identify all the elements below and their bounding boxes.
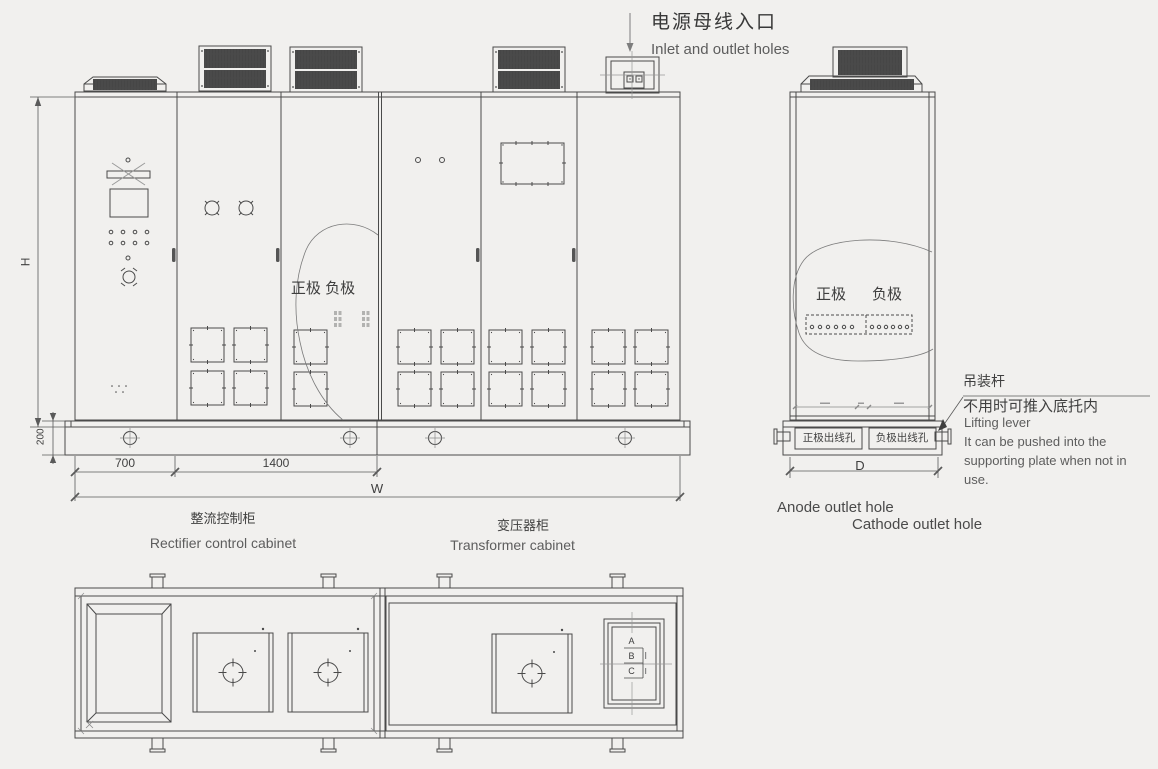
lifting-tab — [150, 738, 165, 752]
phase-b-label: B — [625, 651, 638, 661]
indicator-lights — [109, 230, 149, 245]
fan-plate — [288, 628, 368, 712]
front-polarity-label: 正极 负极 — [284, 280, 362, 297]
side-polarity-positive-label: 正极 — [810, 286, 852, 303]
display-screen — [110, 189, 148, 217]
lifting-tab — [150, 574, 165, 588]
roof-vent-box — [290, 47, 362, 92]
polarity-studs — [334, 312, 370, 326]
terminal-strip — [806, 315, 912, 334]
dim-segment1-label: 700 — [100, 457, 150, 471]
lifting-tab — [321, 738, 336, 752]
phase-c-label: C — [625, 666, 638, 676]
access-plate — [499, 141, 566, 186]
phase-a-label: A — [625, 636, 638, 646]
fan-plate — [492, 629, 572, 713]
transformer-cabinet-label-en: Transformer cabinet — [440, 537, 585, 553]
lifting-lever-note-en-line1: It can be pushed into the — [964, 435, 1106, 450]
transformer-cabinet-label-cn: 变压器柜 — [448, 519, 598, 534]
base-plinth — [65, 421, 690, 455]
busbar-detail — [600, 612, 672, 715]
side-polarity-negative-label: 负极 — [866, 286, 908, 303]
lifting-lever-label-en: Lifting lever — [964, 416, 1030, 431]
engineering-drawing-canvas: 电源母线入口 Inlet and outlet holes 正极 负极 正极 负… — [0, 0, 1158, 769]
fan-openings — [205, 201, 253, 215]
anode-outlet-label-en: Anode outlet hole — [777, 499, 894, 516]
dim-depth-label: D — [851, 459, 869, 474]
dim-total-width-label: W — [366, 482, 388, 497]
lifting-tab — [610, 574, 625, 588]
lifting-tab — [610, 738, 625, 752]
dim-base-height-label: 200 — [36, 428, 48, 445]
cathode-outlet-label-en: Cathode outlet hole — [852, 516, 982, 533]
front-view — [65, 13, 690, 455]
rectifier-cabinet-label-en: Rectifier control cabinet — [143, 535, 303, 551]
anode-hole-label-cn: 正极出线孔 — [796, 432, 862, 444]
plan-left-unit — [75, 574, 385, 752]
plan-right-unit — [380, 574, 683, 752]
power-inlet-label-cn: 电源母线入口 — [651, 12, 777, 34]
inlet-arrow-icon — [627, 13, 634, 52]
louver-vents — [189, 326, 670, 408]
lifting-lever-note-en-line2: supporting plate when not in — [964, 454, 1127, 469]
door-handle-icon — [172, 248, 576, 262]
lifting-lever-note-cn: 不用时可推入底托内 — [963, 398, 1098, 415]
dim-height-label: H — [19, 258, 33, 267]
plan-view — [75, 574, 683, 752]
roof-vent-box — [493, 47, 565, 92]
lifting-tab — [321, 574, 336, 588]
detail-cloud — [296, 224, 378, 420]
power-inlet-label-en: Inlet and outlet holes — [651, 41, 789, 58]
hood-opening-frame — [87, 604, 171, 722]
roof-hood-vent — [84, 77, 166, 91]
fan-plate — [193, 628, 273, 712]
lifting-tab — [437, 738, 452, 752]
lifting-lever-note-en-line3: use. — [964, 473, 989, 488]
side-roof-vent — [801, 47, 922, 92]
dim-segment2-label: 1400 — [244, 457, 308, 471]
roof-vent-box — [199, 46, 271, 91]
cathode-hole-label-cn: 负极出线孔 — [869, 432, 935, 444]
control-panel — [107, 158, 150, 393]
lifting-tab — [437, 574, 452, 588]
push-button — [121, 268, 137, 286]
rectifier-cabinet-label-cn: 整流控制柜 — [148, 512, 298, 527]
lifting-lever-label-cn: 吊装杆 — [963, 373, 1005, 389]
